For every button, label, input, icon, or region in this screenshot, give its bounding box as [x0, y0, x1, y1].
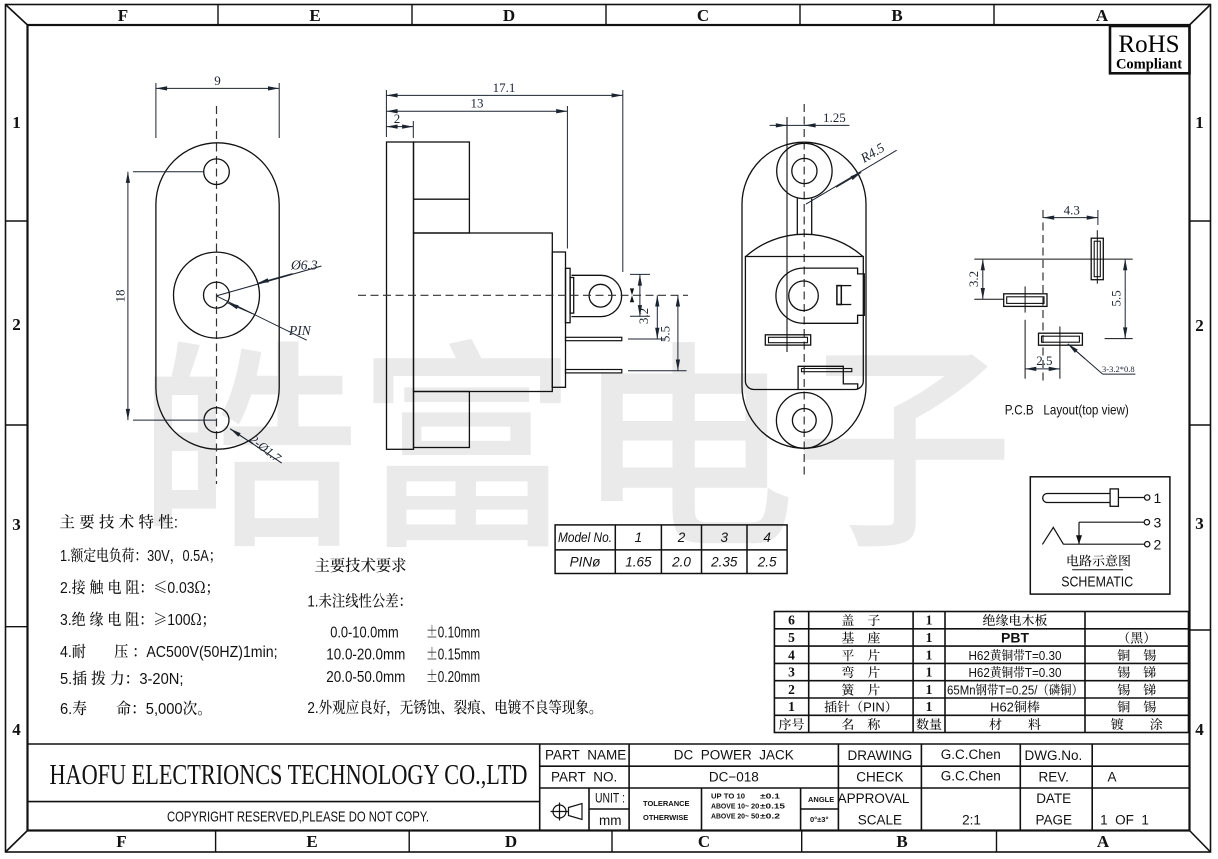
svg-text:±0.2: ±0.2	[760, 812, 780, 821]
svg-text:弯 片: 弯 片	[841, 662, 880, 681]
svg-text:B: B	[896, 832, 907, 851]
svg-text:Compliant: Compliant	[1116, 57, 1182, 73]
svg-text:2.0: 2.0	[671, 555, 691, 570]
svg-text:E: E	[306, 832, 317, 851]
svg-text:H62黄铜带T=0.30: H62黄铜带T=0.30	[969, 662, 1062, 681]
svg-text:2: 2	[12, 315, 21, 334]
svg-text:APPROVAL: APPROVAL	[838, 791, 910, 806]
svg-text:主 要 技 术 特 性:: 主 要 技 术 特 性:	[60, 510, 179, 533]
svg-text:序号: 序号	[778, 714, 804, 733]
svg-text:1: 1	[635, 530, 643, 545]
svg-text:A: A	[1107, 770, 1116, 785]
svg-text:数量: 数量	[916, 714, 942, 733]
svg-text:A: A	[1096, 6, 1109, 25]
svg-text:1: 1	[926, 665, 933, 680]
svg-text:2.外观应良好，无锈蚀、裂痕、电镀不良等现象。: 2.外观应良好，无锈蚀、裂痕、电镀不良等现象。	[307, 695, 602, 718]
svg-text:3: 3	[1154, 515, 1162, 531]
svg-text:1.25: 1.25	[823, 110, 846, 125]
svg-text:3: 3	[788, 665, 795, 680]
svg-text:0.0-10.0mm: 0.0-10.0mm	[330, 620, 399, 643]
svg-text:PART NAME: PART NAME	[545, 748, 626, 763]
svg-text:±0.15mm: ±0.15mm	[426, 642, 480, 665]
svg-text:C: C	[697, 6, 709, 25]
svg-text:ABOVE 20~: ABOVE 20~	[711, 812, 750, 821]
svg-text:COPYRIGHT RESERVED,PLEASE DO N: COPYRIGHT RESERVED,PLEASE DO NOT COPY.	[167, 810, 429, 826]
svg-text:主要技术要求: 主要技术要求	[315, 553, 407, 576]
svg-text:1.65: 1.65	[625, 555, 652, 570]
svg-text:C: C	[698, 832, 710, 851]
svg-text:1: 1	[926, 630, 933, 645]
svg-text:REV.: REV.	[1039, 770, 1069, 785]
svg-text:H62黄铜带T=0.30: H62黄铜带T=0.30	[969, 645, 1062, 664]
svg-text:1.额定电负荷：30V，0.5A；: 1.额定电负荷：30V，0.5A；	[60, 543, 222, 566]
svg-text:TOLERANCE: TOLERANCE	[643, 799, 690, 808]
svg-text:ANGLE: ANGLE	[808, 795, 834, 804]
svg-text:R4.5: R4.5	[857, 140, 887, 166]
svg-text:PBT: PBT	[1001, 630, 1029, 646]
svg-text:（黑）: （黑）	[1117, 628, 1156, 647]
svg-text:SCHEMATIC: SCHEMATIC	[1061, 575, 1133, 591]
svg-text:3: 3	[12, 515, 21, 534]
svg-text:3.绝 缘 电 阻：≥100Ω；: 3.绝 缘 电 阻：≥100Ω；	[60, 607, 216, 630]
svg-text:mm: mm	[599, 813, 622, 828]
svg-text:DATE: DATE	[1036, 791, 1071, 806]
svg-text:插针（PIN）: 插针（PIN）	[824, 697, 898, 716]
svg-text:簧 片: 簧 片	[841, 679, 880, 698]
svg-text:10.0-20.0mm: 10.0-20.0mm	[326, 642, 405, 665]
svg-text:1.未注线性公差：: 1.未注线性公差：	[307, 589, 412, 612]
svg-text:H62铜棒: H62铜棒	[990, 697, 1040, 716]
svg-text:20: 20	[751, 802, 759, 811]
svg-text:1: 1	[926, 647, 933, 662]
svg-text:5.5: 5.5	[1109, 290, 1124, 306]
svg-text:ABOVE 10~: ABOVE 10~	[711, 802, 750, 811]
svg-text:2: 2	[677, 530, 686, 545]
svg-text:13: 13	[471, 96, 484, 111]
svg-text:±0.1: ±0.1	[760, 792, 780, 801]
svg-text:2.5: 2.5	[1036, 353, 1052, 368]
svg-text:3-3.2*0.8: 3-3.2*0.8	[1102, 364, 1135, 374]
svg-text:±0.10mm: ±0.10mm	[426, 620, 480, 643]
svg-text:基 座: 基 座	[841, 628, 880, 647]
svg-text:6.寿 命：5,000次。: 6.寿 命：5,000次。	[60, 696, 212, 719]
svg-text:5: 5	[788, 630, 795, 645]
svg-text:镀 涂: 镀 涂	[1111, 714, 1163, 733]
svg-text:DRAWING: DRAWING	[848, 748, 913, 763]
svg-text:6: 6	[788, 613, 795, 628]
svg-text:±0.20mm: ±0.20mm	[426, 664, 480, 687]
svg-text:Model No.: Model No.	[558, 530, 612, 545]
svg-text:铜 锡: 铜 锡	[1117, 645, 1156, 664]
svg-text:1: 1	[1195, 113, 1204, 132]
svg-text:DC−018: DC−018	[709, 770, 759, 785]
svg-text:0°±3°: 0°±3°	[810, 815, 828, 824]
svg-text:锡 锑: 锡 锑	[1117, 662, 1156, 681]
svg-text:CHECK: CHECK	[856, 770, 903, 785]
svg-text:D: D	[503, 6, 515, 25]
svg-text:4.耐 压 ：AC500V(50HZ)1min;: 4.耐 压 ：AC500V(50HZ)1min;	[60, 639, 278, 662]
svg-text:RoHS: RoHS	[1118, 31, 1179, 58]
svg-text:DC POWER JACK: DC POWER JACK	[674, 748, 794, 763]
svg-text:4.3: 4.3	[1064, 203, 1080, 218]
svg-text:4: 4	[1195, 720, 1204, 739]
svg-text:PINø: PINø	[570, 555, 601, 570]
svg-text:2:1: 2:1	[962, 813, 981, 828]
svg-text:3: 3	[721, 530, 729, 545]
svg-text:PIN: PIN	[288, 323, 312, 338]
svg-text:盖 子: 盖 子	[841, 610, 880, 629]
svg-text:2.35: 2.35	[710, 555, 738, 570]
svg-text:4: 4	[763, 530, 771, 545]
svg-text:材 料: 材 料	[989, 714, 1041, 733]
svg-text:1: 1	[788, 699, 795, 714]
svg-text:17.1: 17.1	[493, 80, 516, 95]
svg-text:4: 4	[788, 647, 795, 662]
svg-text:G.C.Chen: G.C.Chen	[941, 747, 1001, 762]
svg-text:1: 1	[1154, 490, 1162, 506]
svg-text:A: A	[1097, 832, 1110, 851]
svg-text:65Mn钢带T=0.25/（磷铜）: 65Mn钢带T=0.25/（磷铜）	[947, 679, 1083, 698]
svg-text:锡 锑: 锡 锑	[1117, 679, 1156, 698]
svg-text:1: 1	[12, 113, 21, 132]
svg-text:Ø6.3: Ø6.3	[290, 258, 318, 273]
svg-text:OTHERWISE: OTHERWISE	[643, 813, 688, 822]
svg-text:18: 18	[113, 290, 128, 303]
svg-text:2: 2	[394, 111, 401, 126]
svg-text:UNIT :: UNIT :	[595, 791, 625, 806]
svg-text:1: 1	[926, 699, 933, 714]
svg-text:2: 2	[788, 682, 795, 697]
svg-text:E: E	[309, 6, 320, 25]
svg-text:UP TO 10: UP TO 10	[711, 792, 745, 801]
svg-text:绝缘电木板: 绝缘电木板	[982, 610, 1047, 629]
svg-text:±0.15: ±0.15	[760, 802, 785, 811]
svg-text:HAOFU ELECTRIONCS TECHNOLOGY C: HAOFU ELECTRIONCS TECHNOLOGY CO.,LTD	[50, 760, 528, 791]
svg-text:1: 1	[926, 682, 933, 697]
svg-text:名 称: 名 称	[841, 714, 881, 733]
svg-text:G.C.Chen: G.C.Chen	[941, 769, 1001, 784]
svg-text:PART NO.: PART NO.	[551, 770, 617, 785]
svg-text:F: F	[118, 6, 128, 25]
svg-text:2: 2	[1195, 316, 1204, 335]
svg-text:D: D	[505, 832, 517, 851]
svg-text:20.0-50.0mm: 20.0-50.0mm	[326, 664, 405, 687]
svg-text:2.5: 2.5	[757, 555, 777, 570]
svg-text:电路示意图: 电路示意图	[1066, 551, 1131, 570]
svg-text:50: 50	[751, 812, 759, 821]
svg-text:1 OF 1: 1 OF 1	[1100, 813, 1149, 828]
svg-text:5.插 拨 力：3-20N;: 5.插 拨 力：3-20N;	[60, 666, 184, 689]
svg-text:5.5: 5.5	[658, 326, 673, 342]
svg-text:3.2: 3.2	[966, 271, 981, 287]
svg-text:SCALE: SCALE	[858, 813, 902, 828]
svg-text:铜 锡: 铜 锡	[1117, 697, 1156, 716]
svg-text:2: 2	[1154, 537, 1162, 553]
svg-text:F: F	[116, 832, 126, 851]
svg-text:P.C.B Layout(top view): P.C.B Layout(top view)	[1005, 402, 1129, 418]
svg-text:2.接 触 电 阻：≤0.03Ω；: 2.接 触 电 阻：≤0.03Ω；	[60, 575, 220, 598]
svg-text:1: 1	[926, 613, 933, 628]
svg-text:3: 3	[1195, 514, 1204, 533]
svg-text:3.2: 3.2	[636, 308, 651, 324]
svg-text:平 片: 平 片	[841, 645, 880, 664]
svg-text:DWG.No.: DWG.No.	[1025, 748, 1083, 763]
svg-text:B: B	[891, 6, 902, 25]
svg-text:4: 4	[12, 720, 21, 739]
svg-text:9: 9	[214, 73, 221, 88]
svg-text:PAGE: PAGE	[1035, 813, 1072, 828]
